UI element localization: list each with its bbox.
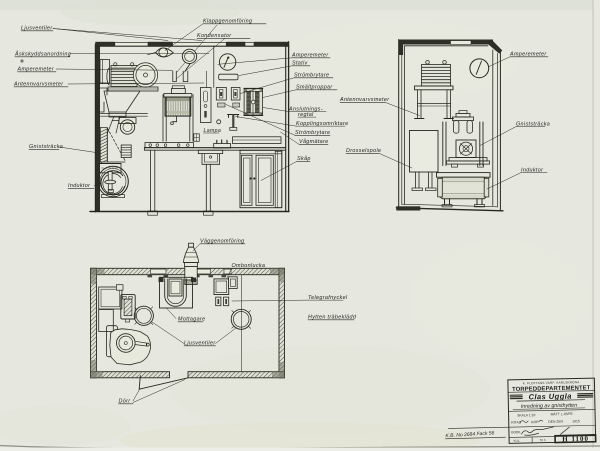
svg-text:1915: 1915 xyxy=(572,419,580,423)
svg-text:Skåp: Skåp xyxy=(297,155,311,162)
svg-text:KUL.: KUL. xyxy=(514,439,521,443)
svg-text:70 h: 70 h xyxy=(540,438,546,442)
svg-text:MÄTT L.JB/FE: MÄTT L.JB/FE xyxy=(551,412,574,416)
svg-text:SKALA 1:10: SKALA 1:10 xyxy=(517,413,535,417)
svg-text:GODK.: GODK. xyxy=(511,430,521,434)
svg-text:Åskskyddsanordning: Åskskyddsanordning xyxy=(14,51,71,58)
svg-text:DEN 25/9: DEN 25/9 xyxy=(548,420,563,424)
svg-text:H 1100: H 1100 xyxy=(562,435,589,444)
svg-text:KOP.: KOP. xyxy=(531,420,539,424)
svg-text:RITAD: RITAD xyxy=(511,420,522,424)
svg-text:Vågmätare: Vågmätare xyxy=(299,138,329,145)
